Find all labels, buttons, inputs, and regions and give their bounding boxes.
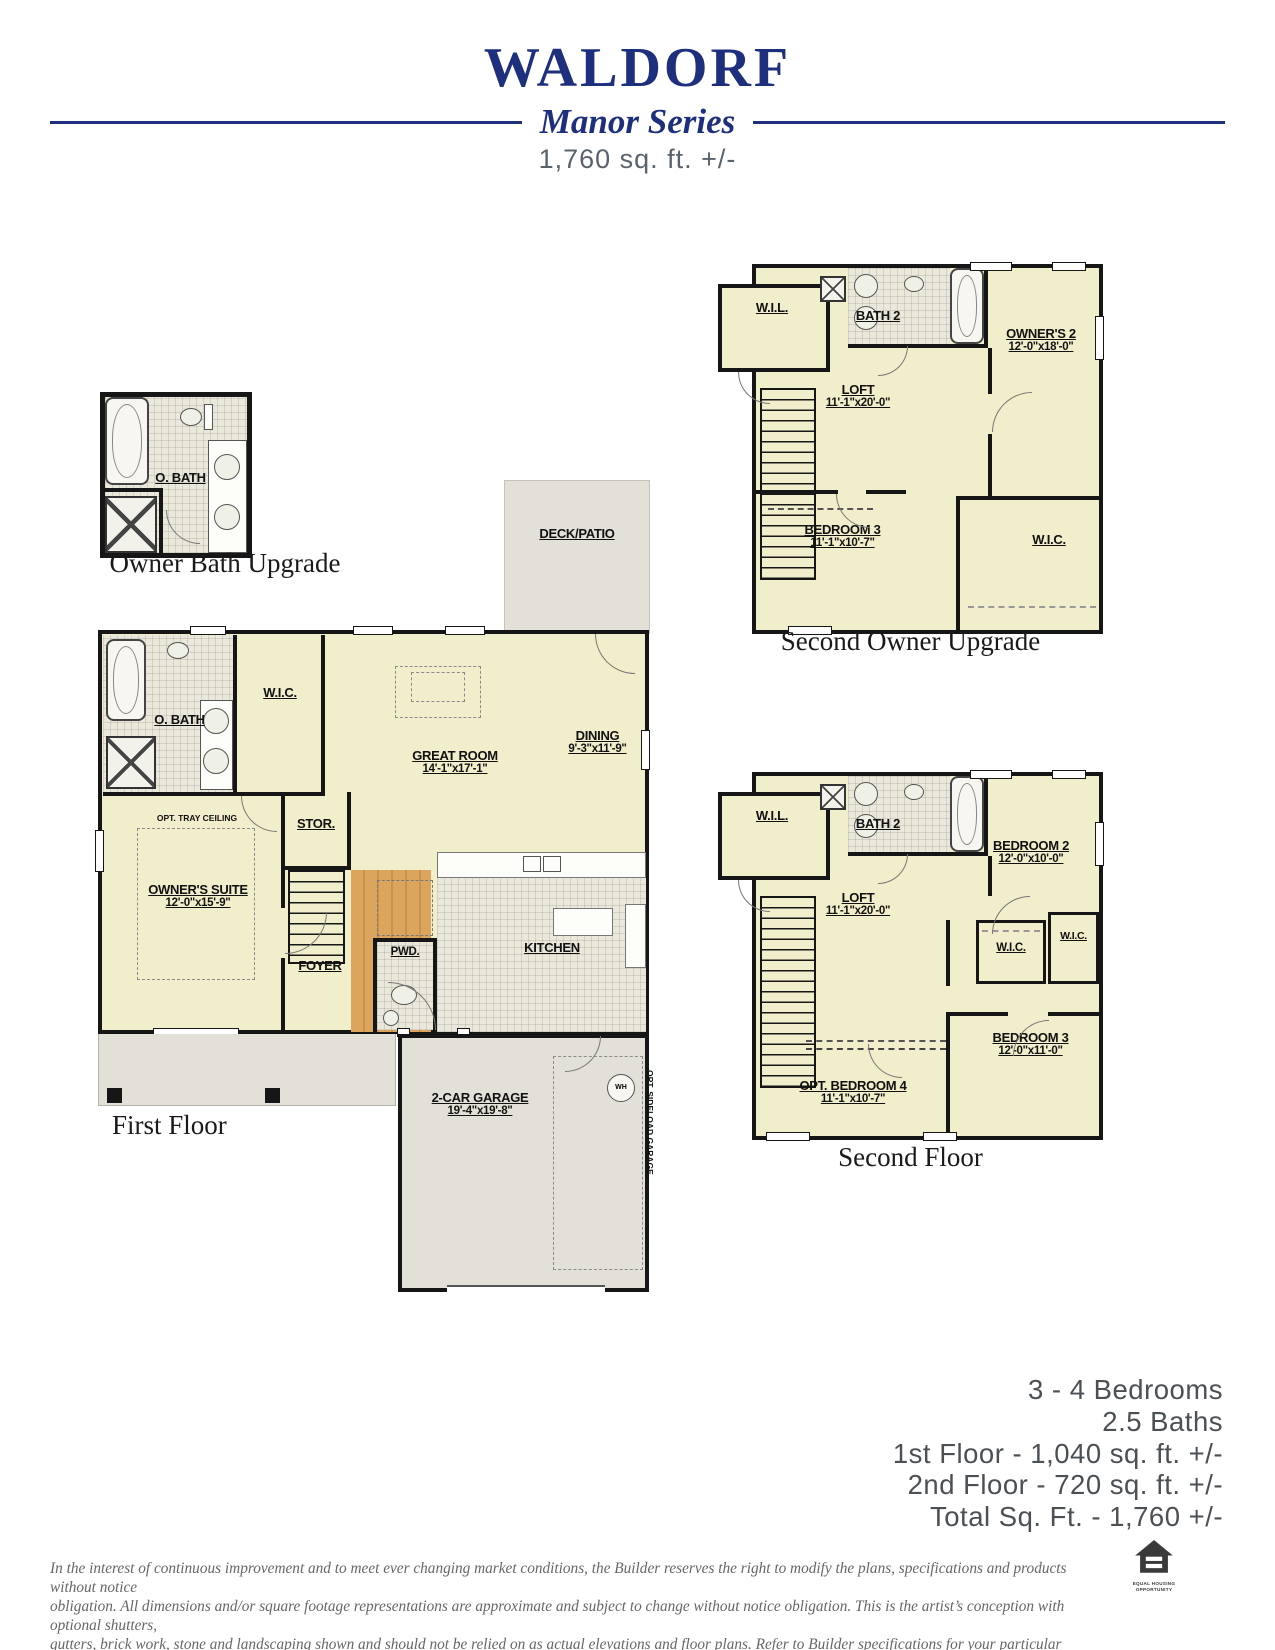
room-name: W.I.C. bbox=[1018, 532, 1080, 547]
total-sqft-subtitle: 1,760 sq. ft. +/- bbox=[0, 144, 1275, 175]
second-floor-plan: W.I.L. BATH 2 BEDROOM 2 12'-0"x10'-0" LO… bbox=[718, 772, 1103, 1140]
door-arc bbox=[738, 880, 770, 912]
room-name: W.I.C. bbox=[978, 942, 1044, 956]
wall bbox=[281, 958, 285, 1032]
brochure-page: WALDORF Manor Series 1,760 sq. ft. +/- O… bbox=[0, 0, 1275, 1650]
window bbox=[1052, 262, 1086, 271]
caption-second-floor: Second Floor bbox=[718, 1142, 1103, 1173]
room-name: BATH 2 bbox=[842, 308, 914, 323]
front-porch bbox=[98, 1034, 396, 1106]
room-name: STOR. bbox=[287, 816, 345, 831]
room-label-stor: STOR. bbox=[287, 816, 345, 831]
wall bbox=[956, 496, 1099, 500]
equal-housing-house-icon bbox=[1134, 1540, 1174, 1576]
eho-line: OPPORTUNITY bbox=[1130, 1587, 1178, 1593]
wall bbox=[946, 1012, 950, 1136]
room-name: W.I.L. bbox=[740, 808, 804, 823]
caption-first-floor: First Floor bbox=[112, 1110, 227, 1141]
room-label-owners-suite: OWNER'S SUITE 12'-0"x15'-9" bbox=[133, 882, 263, 911]
room-label-kitchen: KITCHEN bbox=[507, 940, 597, 955]
window bbox=[353, 626, 393, 635]
window bbox=[766, 1132, 810, 1141]
room-label-wic1: W.I.C. bbox=[978, 942, 1044, 956]
wall bbox=[321, 635, 325, 795]
window bbox=[970, 770, 1012, 779]
wall bbox=[373, 938, 437, 942]
room-label-foyer: FOYER bbox=[289, 958, 351, 973]
room-label-bedroom2: BEDROOM 2 12'-0"x10'-0" bbox=[966, 838, 1096, 867]
room-label-loft: LOFT 11'-1"x20'-0" bbox=[810, 890, 906, 919]
water-heater: WH bbox=[607, 1074, 635, 1102]
room-dims: 19'-4"x19'-8" bbox=[415, 1105, 545, 1119]
bathtub bbox=[106, 639, 146, 721]
room-name: GREAT ROOM bbox=[395, 748, 515, 763]
room-label-owners2: OWNER'S 2 12'-0"x18'-0" bbox=[982, 326, 1100, 355]
room-name: 2-CAR GARAGE bbox=[415, 1090, 545, 1105]
wall bbox=[946, 920, 950, 986]
series-name: Manor Series bbox=[540, 102, 735, 142]
room-dims: 14'-1"x17'-1" bbox=[395, 763, 515, 777]
room-dims: 12'-0"x15'-9" bbox=[133, 897, 263, 911]
wall bbox=[756, 490, 838, 494]
second-owner-upgrade-plan: W.I.L. BATH 2 OWNER'S 2 12'-0"x18'-0" LO… bbox=[718, 264, 1103, 634]
wall bbox=[848, 344, 988, 348]
window bbox=[445, 626, 485, 635]
room-name: BEDROOM 2 bbox=[966, 838, 1096, 853]
deck-patio-area bbox=[504, 480, 650, 634]
disclaimer-line: In the interest of continuous improvemen… bbox=[50, 1559, 1112, 1597]
linen-closet bbox=[820, 784, 846, 810]
room-name: LOFT bbox=[810, 890, 906, 905]
room-label-obath: O. BATH bbox=[137, 712, 222, 727]
vanity-sink bbox=[854, 274, 878, 298]
room-label-wil: W.I.L. bbox=[740, 300, 804, 315]
room-name: DECK/PATIO bbox=[504, 526, 650, 541]
window bbox=[1052, 770, 1086, 779]
garage-door-opening bbox=[447, 1285, 605, 1293]
porch-post bbox=[107, 1088, 122, 1103]
closet-shelf-line bbox=[968, 606, 1096, 608]
window bbox=[190, 626, 226, 635]
window bbox=[641, 730, 650, 770]
optional-furniture-outline bbox=[411, 672, 465, 702]
room-name: BEDROOM 3 bbox=[780, 522, 905, 537]
room-name: FOYER bbox=[289, 958, 351, 973]
room-label-garage: 2-CAR GARAGE 19'-4"x19'-8" bbox=[415, 1090, 545, 1119]
room-dims: 11'-1"x10'-7" bbox=[778, 1093, 928, 1107]
shower bbox=[106, 736, 156, 789]
legal-disclaimer: In the interest of continuous improvemen… bbox=[50, 1559, 1112, 1650]
room-dims: 12'-0"x18'-0" bbox=[982, 341, 1100, 355]
room-dims: 11'-1"x20'-0" bbox=[810, 905, 906, 919]
room-name: W.I.L. bbox=[740, 300, 804, 315]
bathtub bbox=[950, 268, 984, 344]
spec-summary: 3 - 4 Bedrooms 2.5 Baths 1st Floor - 1,0… bbox=[893, 1374, 1223, 1533]
room-name: BATH 2 bbox=[842, 816, 914, 831]
room-label-wic2: W.I.C. bbox=[1048, 930, 1099, 942]
room-label-pwd: PWD. bbox=[379, 946, 431, 960]
wall bbox=[347, 792, 351, 870]
toilet-tank bbox=[204, 404, 213, 430]
toilet bbox=[904, 784, 924, 800]
opt-sideload-label: OPT. SIDELOAD GARAGE bbox=[645, 1070, 655, 1220]
wall bbox=[373, 942, 377, 1032]
series-banner: Manor Series bbox=[50, 102, 1225, 142]
room-label-wic: W.I.C. bbox=[1018, 532, 1080, 547]
room-label-opt-bedroom4: OPT. BEDROOM 4 11'-1"x10'-7" bbox=[778, 1078, 928, 1107]
wall bbox=[281, 796, 285, 908]
opt-tray-label: OPT. TRAY CEILING bbox=[147, 813, 247, 823]
room-name: W.I.C. bbox=[245, 685, 315, 700]
caption-second-owner-upgrade: Second Owner Upgrade bbox=[718, 626, 1103, 657]
room-label-deck: DECK/PATIO bbox=[504, 526, 650, 541]
room-label-wic: W.I.C. bbox=[245, 685, 315, 700]
kitchen-sink bbox=[543, 856, 561, 872]
equal-housing-logo: EQUAL HOUSING OPPORTUNITY bbox=[1130, 1540, 1178, 1594]
room-name: LOFT bbox=[810, 382, 906, 397]
room-dims: 11'-1"x10'-7" bbox=[780, 537, 905, 551]
wall bbox=[1048, 1012, 1099, 1016]
room-name: PWD. bbox=[379, 946, 431, 960]
water-heater-label: WH bbox=[615, 1084, 627, 1091]
wil-wing bbox=[718, 792, 830, 880]
room-label-great-room: GREAT ROOM 14'-1"x17'-1" bbox=[395, 748, 515, 777]
kitchen-sink bbox=[523, 856, 541, 872]
window bbox=[970, 262, 1012, 271]
divider-line bbox=[753, 121, 1225, 124]
toilet bbox=[180, 408, 202, 426]
toilet bbox=[167, 642, 189, 659]
room-name: DINING bbox=[550, 728, 645, 743]
room-name: O. BATH bbox=[137, 712, 222, 727]
room-name: OWNER'S 2 bbox=[982, 326, 1100, 341]
vanity-sink bbox=[203, 748, 229, 774]
spec-baths: 2.5 Baths bbox=[893, 1406, 1223, 1438]
room-dims: 12'-0"x10'-0" bbox=[966, 853, 1096, 867]
linen-closet bbox=[820, 276, 846, 302]
kitchen-island bbox=[553, 908, 613, 936]
first-floor-plan: DECK/PATIO O. BATH W.I.C. GREAT ROOM 14'… bbox=[95, 480, 652, 1292]
room-label-wil: W.I.L. bbox=[740, 808, 804, 823]
room-dims: 9'-3"x11'-9" bbox=[550, 743, 645, 757]
spec-total-sqft: Total Sq. Ft. - 1,760 +/- bbox=[893, 1501, 1223, 1533]
wall bbox=[988, 348, 992, 394]
room-name: OPT. SIDELOAD GARAGE bbox=[645, 1070, 655, 1220]
wic-closet bbox=[1048, 912, 1099, 984]
room-label-loft: LOFT 11'-1"x20'-0" bbox=[810, 382, 906, 411]
room-name: W.I.C. bbox=[1048, 930, 1099, 942]
room-label-dining: DINING 9'-3"x11'-9" bbox=[550, 728, 645, 757]
spec-second-floor-sqft: 2nd Floor - 720 sq. ft. +/- bbox=[893, 1469, 1223, 1501]
wall bbox=[103, 792, 237, 796]
spec-first-floor-sqft: 1st Floor - 1,040 sq. ft. +/- bbox=[893, 1438, 1223, 1470]
room-label-bath2: BATH 2 bbox=[842, 816, 914, 831]
wall bbox=[233, 635, 237, 794]
disclaimer-line: gutters, brick work, stone and landscapi… bbox=[50, 1635, 1112, 1650]
room-name: OPT. BEDROOM 4 bbox=[778, 1078, 928, 1093]
room-dims: 11'-1"x20'-0" bbox=[810, 397, 906, 411]
room-label-bath2: BATH 2 bbox=[842, 308, 914, 323]
wall bbox=[988, 434, 992, 496]
kitchen-counter bbox=[437, 852, 646, 878]
room-name: KITCHEN bbox=[507, 940, 597, 955]
room-name: OWNER'S SUITE bbox=[133, 882, 263, 897]
wall bbox=[866, 490, 906, 494]
window bbox=[1095, 822, 1104, 866]
staircase bbox=[760, 388, 816, 580]
window bbox=[1095, 316, 1104, 360]
window bbox=[923, 1132, 957, 1141]
spec-bedrooms: 3 - 4 Bedrooms bbox=[893, 1374, 1223, 1406]
room-label-bedroom3: BEDROOM 3 11'-1"x10'-7" bbox=[780, 522, 905, 551]
wall bbox=[956, 500, 960, 630]
disclaimer-line: obligation. All dimensions and/or square… bbox=[50, 1597, 1112, 1635]
wil-wing bbox=[718, 284, 830, 372]
toilet bbox=[904, 276, 924, 292]
page-title: WALDORF bbox=[0, 36, 1275, 100]
door-arc bbox=[738, 372, 770, 404]
staircase bbox=[760, 896, 816, 1088]
equal-housing-text: EQUAL HOUSING OPPORTUNITY bbox=[1130, 1581, 1178, 1594]
room-name: OPT. TRAY CEILING bbox=[147, 813, 247, 823]
window bbox=[95, 830, 104, 872]
range-counter bbox=[625, 904, 646, 968]
vanity-sink bbox=[854, 782, 878, 806]
divider-line bbox=[50, 121, 522, 124]
closet-shelves bbox=[377, 880, 433, 936]
porch-post bbox=[265, 1088, 280, 1103]
wall bbox=[950, 1012, 1008, 1016]
